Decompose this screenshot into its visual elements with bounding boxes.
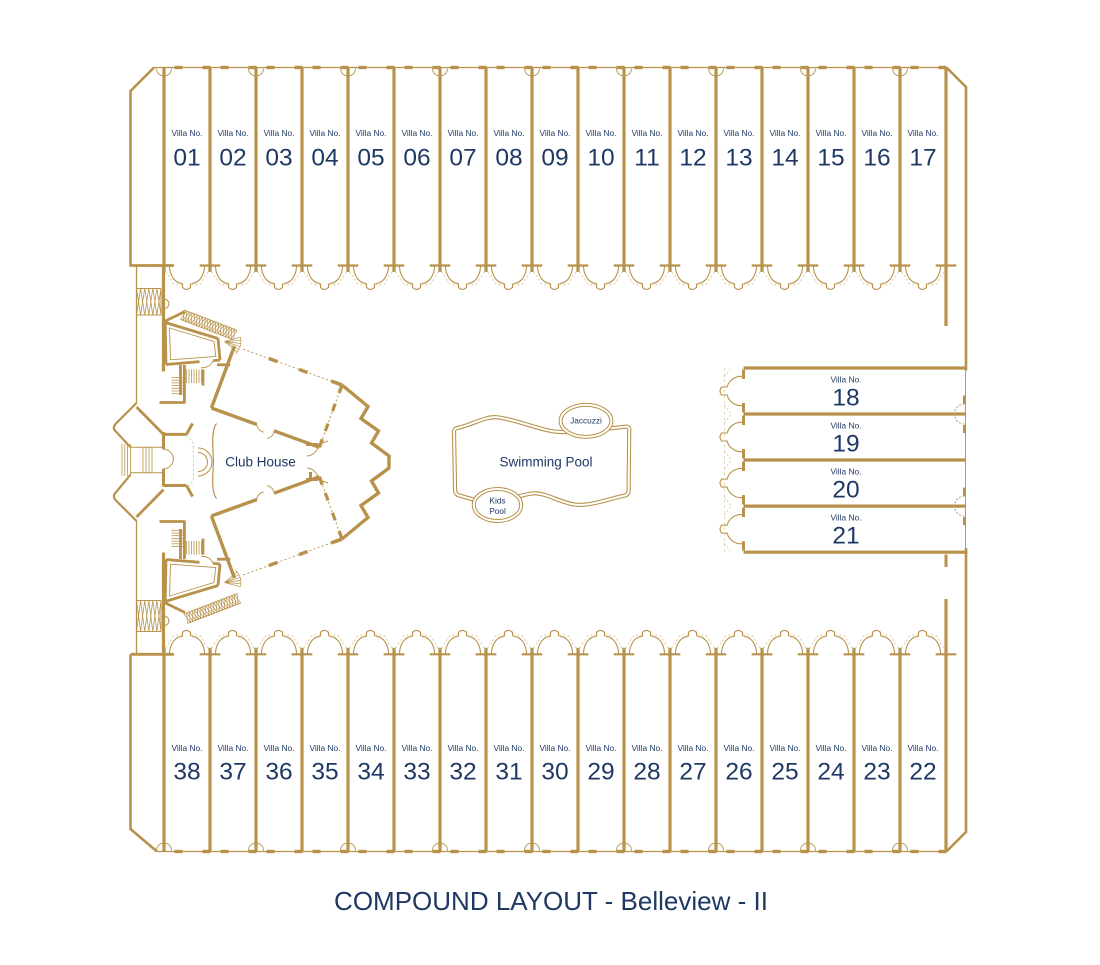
svg-text:Villa No.: Villa No. [309, 743, 340, 753]
svg-text:Kids: Kids [489, 496, 505, 506]
svg-text:01: 01 [173, 145, 200, 172]
svg-text:Villa No.: Villa No. [263, 743, 294, 753]
svg-text:04: 04 [311, 145, 338, 172]
svg-text:Villa No.: Villa No. [769, 743, 800, 753]
svg-text:Villa No.: Villa No. [539, 743, 570, 753]
svg-text:03: 03 [265, 145, 292, 172]
svg-text:Villa No.: Villa No. [677, 743, 708, 753]
svg-text:Jaccuzzi: Jaccuzzi [570, 416, 602, 426]
svg-text:09: 09 [541, 145, 568, 172]
svg-text:Villa No.: Villa No. [355, 743, 386, 753]
svg-text:34: 34 [357, 759, 384, 786]
svg-text:12: 12 [679, 145, 706, 172]
svg-text:32: 32 [449, 759, 476, 786]
svg-text:15: 15 [817, 145, 844, 172]
svg-text:29: 29 [587, 759, 614, 786]
svg-text:Club House: Club House [225, 455, 296, 470]
svg-text:Swimming Pool: Swimming Pool [499, 455, 592, 470]
svg-text:Villa No.: Villa No. [815, 743, 846, 753]
svg-text:23: 23 [863, 759, 890, 786]
svg-text:11: 11 [634, 145, 659, 172]
svg-text:Villa No.: Villa No. [585, 743, 616, 753]
svg-text:24: 24 [817, 759, 844, 786]
svg-text:Villa No.: Villa No. [631, 128, 662, 138]
svg-text:Villa No.: Villa No. [631, 743, 662, 753]
svg-text:08: 08 [495, 145, 522, 172]
svg-text:20: 20 [832, 476, 859, 503]
svg-text:17: 17 [909, 145, 936, 172]
svg-text:Villa No.: Villa No. [355, 128, 386, 138]
svg-text:Villa No.: Villa No. [493, 128, 524, 138]
svg-text:Villa No.: Villa No. [171, 128, 202, 138]
svg-text:Villa No.: Villa No. [830, 513, 861, 523]
svg-text:33: 33 [403, 759, 430, 786]
svg-text:Villa No.: Villa No. [907, 128, 938, 138]
svg-text:COMPOUND LAYOUT - Belleview -: COMPOUND LAYOUT - Belleview - II [334, 886, 768, 916]
svg-text:Villa No.: Villa No. [830, 374, 861, 384]
svg-text:07: 07 [449, 145, 476, 172]
svg-text:35: 35 [311, 759, 338, 786]
svg-text:18: 18 [832, 384, 859, 411]
svg-text:Villa No.: Villa No. [585, 128, 616, 138]
svg-text:21: 21 [832, 523, 859, 550]
svg-text:28: 28 [633, 759, 660, 786]
svg-text:Villa No.: Villa No. [769, 128, 800, 138]
svg-text:06: 06 [403, 145, 430, 172]
svg-text:Villa No.: Villa No. [907, 743, 938, 753]
svg-text:Villa No.: Villa No. [723, 743, 754, 753]
svg-text:22: 22 [909, 759, 936, 786]
svg-text:Villa No.: Villa No. [263, 128, 294, 138]
svg-text:Villa No.: Villa No. [217, 128, 248, 138]
svg-text:13: 13 [725, 145, 752, 172]
svg-text:Villa No.: Villa No. [171, 743, 202, 753]
svg-text:27: 27 [679, 759, 706, 786]
svg-text:Villa No.: Villa No. [217, 743, 248, 753]
svg-text:19: 19 [832, 430, 859, 457]
svg-text:Villa No.: Villa No. [723, 128, 754, 138]
svg-text:26: 26 [725, 759, 752, 786]
svg-text:Villa No.: Villa No. [447, 743, 478, 753]
svg-text:31: 31 [495, 759, 522, 786]
svg-text:38: 38 [173, 759, 200, 786]
svg-text:Villa No.: Villa No. [861, 128, 892, 138]
svg-text:Villa No.: Villa No. [830, 466, 861, 476]
svg-text:05: 05 [357, 145, 384, 172]
svg-text:36: 36 [265, 759, 292, 786]
svg-text:Villa No.: Villa No. [401, 128, 432, 138]
svg-text:Pool: Pool [489, 506, 506, 516]
svg-text:Villa No.: Villa No. [309, 128, 340, 138]
svg-text:Villa No.: Villa No. [401, 743, 432, 753]
svg-text:25: 25 [771, 759, 798, 786]
svg-text:30: 30 [541, 759, 568, 786]
svg-text:Villa No.: Villa No. [815, 128, 846, 138]
svg-text:14: 14 [771, 145, 798, 172]
svg-text:Villa No.: Villa No. [830, 420, 861, 430]
svg-text:Villa No.: Villa No. [539, 128, 570, 138]
svg-text:Villa No.: Villa No. [861, 743, 892, 753]
svg-text:02: 02 [219, 145, 246, 172]
svg-text:Villa No.: Villa No. [677, 128, 708, 138]
svg-text:10: 10 [587, 145, 614, 172]
svg-text:Villa No.: Villa No. [447, 128, 478, 138]
svg-text:16: 16 [863, 145, 890, 172]
svg-text:Villa No.: Villa No. [493, 743, 524, 753]
svg-text:37: 37 [219, 759, 246, 786]
